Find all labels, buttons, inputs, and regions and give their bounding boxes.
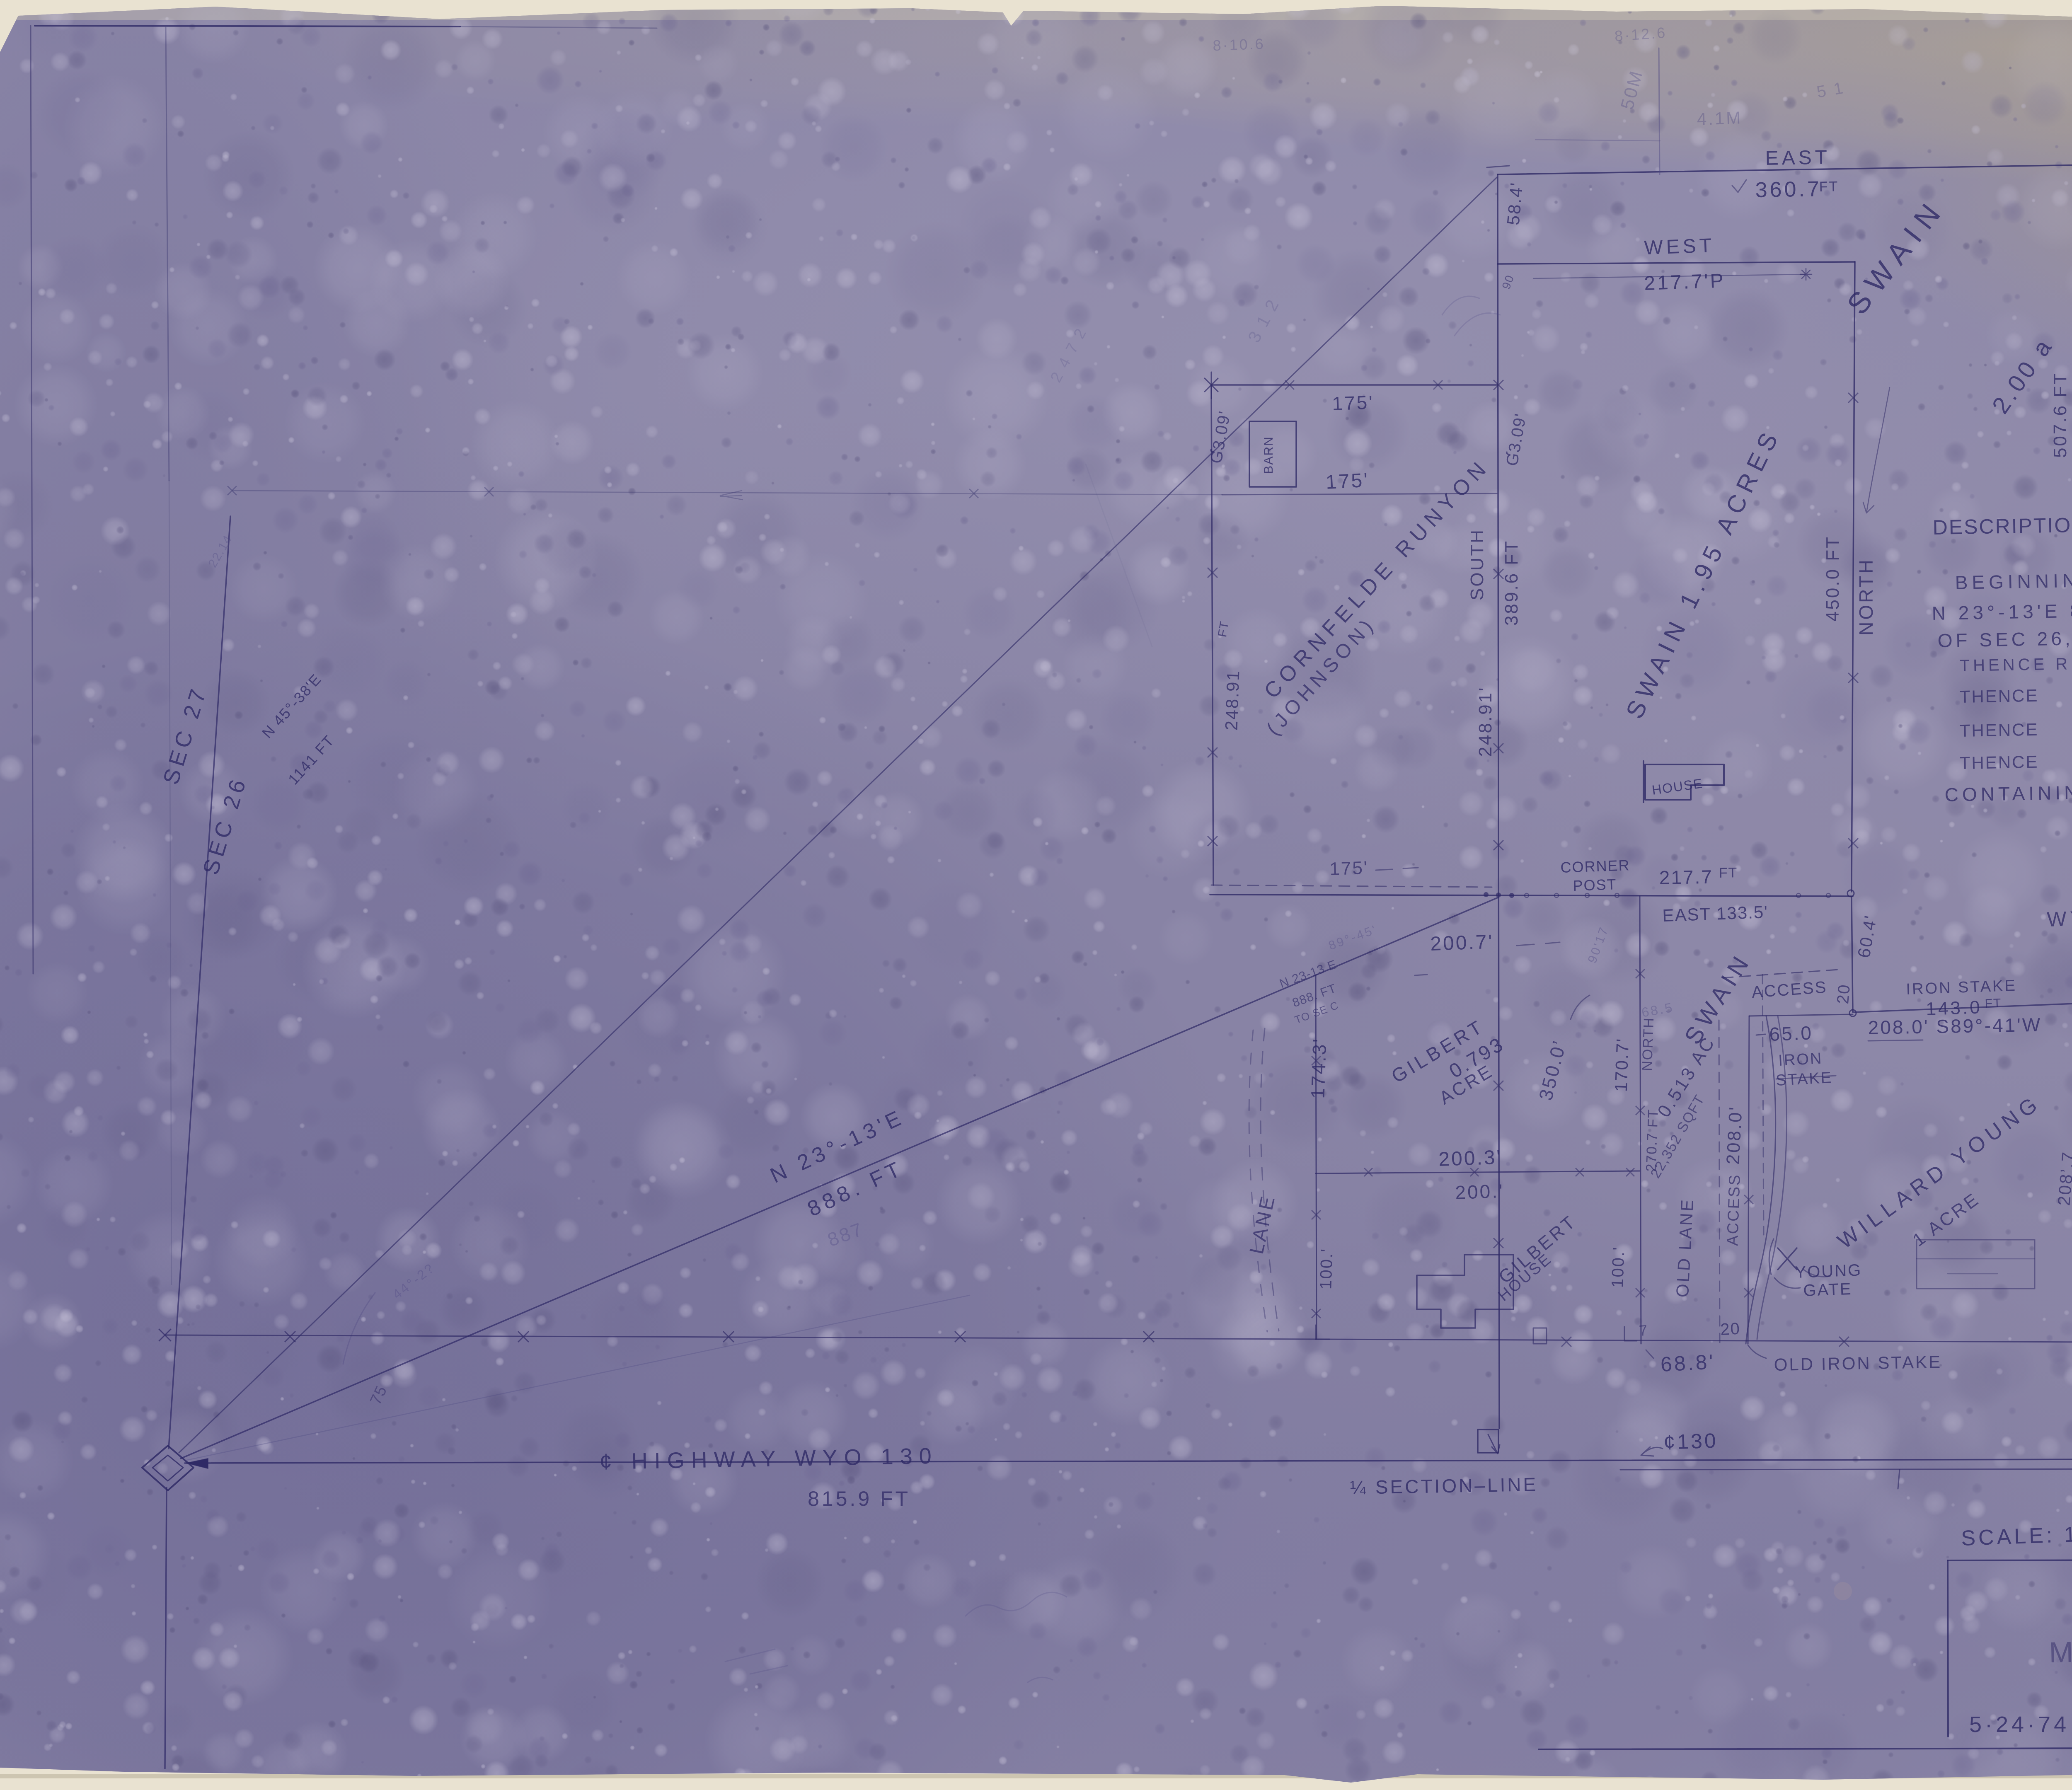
svg-text:ACCESS: ACCESS: [1724, 1173, 1744, 1246]
svg-text:8·12.6: 8·12.6: [1614, 24, 1668, 45]
svg-text:8·10.6: 8·10.6: [1213, 35, 1265, 54]
svg-text:200.7': 200.7': [1430, 931, 1494, 955]
svg-text:58.4': 58.4': [1503, 181, 1527, 226]
svg-text:CORNER: CORNER: [1560, 856, 1630, 876]
svg-text:175': 175': [1329, 858, 1369, 879]
svg-text:815.9 FT: 815.9 FT: [808, 1487, 910, 1510]
svg-text:174.3': 174.3': [1307, 1037, 1330, 1099]
svg-text:FT: FT: [1985, 997, 2002, 1011]
svg-text:20: 20: [1720, 1320, 1741, 1339]
svg-text:200.3': 200.3': [1438, 1147, 1503, 1171]
svg-text:389.6 FT: 389.6 FT: [1501, 539, 1522, 626]
svg-text:360.7: 360.7: [1755, 177, 1822, 202]
svg-text:507.6 FT: 507.6 FT: [2050, 372, 2070, 458]
svg-text:68.8': 68.8': [1660, 1350, 1716, 1376]
svg-text:7: 7: [1639, 1322, 1648, 1339]
svg-text:OLD IRON STAKE: OLD IRON STAKE: [1774, 1352, 1942, 1374]
svg-text:200.': 200.': [1455, 1180, 1505, 1203]
svg-text:WEST: WEST: [1644, 235, 1715, 259]
svg-text:248.91': 248.91': [1475, 686, 1496, 757]
svg-text:217.7'P: 217.7'P: [1644, 270, 1726, 295]
svg-text:THENCE: THENCE: [1959, 720, 2038, 740]
svg-text:THENCE: THENCE: [1959, 752, 2038, 773]
svg-text:SOUTH: SOUTH: [1467, 528, 1487, 600]
svg-text:170.7': 170.7': [1611, 1037, 1633, 1092]
svg-text:175': 175': [1325, 469, 1370, 493]
svg-text:YOUNG: YOUNG: [1795, 1261, 1862, 1282]
svg-text:217.7: 217.7: [1659, 866, 1713, 888]
svg-text:20: 20: [1834, 983, 1854, 1005]
svg-text:208.0' S89°-41'W: 208.0' S89°-41'W: [1868, 1014, 2042, 1038]
svg-text:¼ SECTION–LINE: ¼ SECTION–LINE: [1350, 1473, 1538, 1498]
svg-text:65.0: 65.0: [1769, 1022, 1813, 1045]
svg-text:POST: POST: [1573, 876, 1617, 894]
svg-text:EAST: EAST: [1765, 146, 1830, 169]
svg-text:FT: FT: [1719, 865, 1738, 881]
svg-text:100.': 100.': [1317, 1248, 1336, 1290]
svg-text:100.': 100.': [1608, 1246, 1628, 1288]
svg-text:NORTH: NORTH: [1855, 558, 1877, 636]
svg-text:¢130: ¢130: [1663, 1429, 1718, 1454]
svg-text:NORTH: NORTH: [1639, 1017, 1657, 1072]
svg-text:FT: FT: [1215, 620, 1232, 638]
svg-text:450.0 FT: 450.0 FT: [1823, 535, 1843, 622]
svg-text:THENCE: THENCE: [1959, 686, 2038, 706]
svg-text:208.0': 208.0': [1723, 1105, 1746, 1165]
svg-text:4.1M: 4.1M: [1697, 108, 1743, 129]
svg-text:175': 175': [1332, 391, 1375, 414]
svg-text:GATE: GATE: [1803, 1280, 1852, 1300]
svg-text:248.91: 248.91: [1221, 669, 1243, 731]
svg-text:5·24·74: 5·24·74: [1969, 1712, 2070, 1737]
svg-text:EAST 133.5': EAST 133.5': [1662, 902, 1769, 925]
svg-text:BARN: BARN: [1262, 436, 1276, 474]
svg-text:FT: FT: [1819, 179, 1839, 195]
